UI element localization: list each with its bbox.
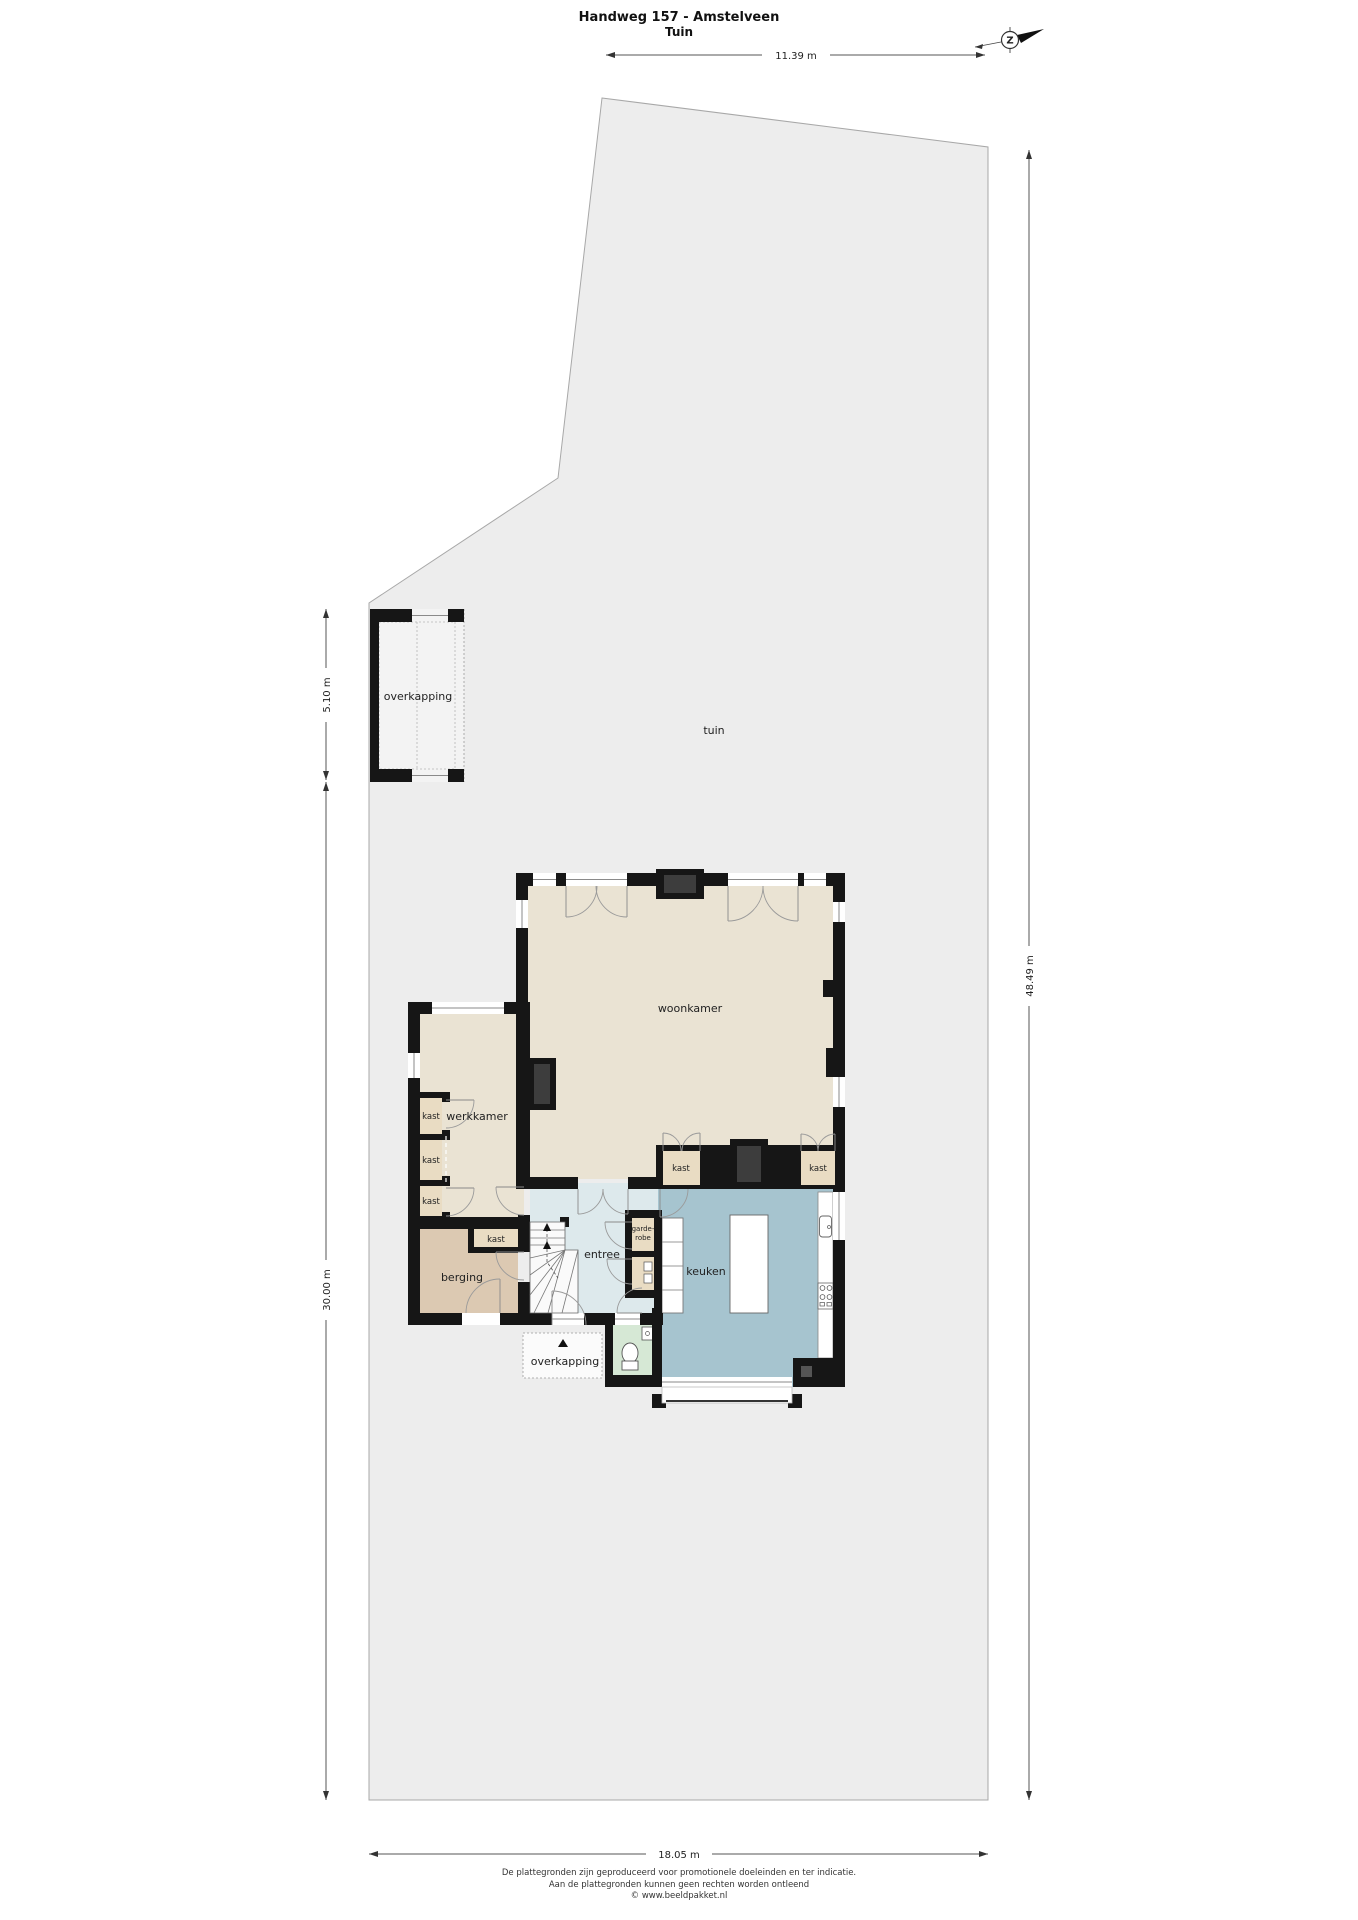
label-garderobe-2: robe [635,1234,651,1242]
label-berging: berging [441,1271,483,1284]
compass-icon: Z [975,27,1044,53]
dim-top-label: 11.39 m [775,51,817,62]
footer-line-2: Aan de plattegronden kunnen geen rechten… [0,1880,1358,1892]
label-kast: kast [422,1197,440,1207]
terrace [662,1387,792,1403]
kitchen-cabinets-icon [662,1218,683,1313]
footer-line-1: De plattegronden zijn geproduceerd voor … [0,1868,1358,1880]
sink-icon [820,1216,832,1237]
dim-garden-left-label: 30.00 m [322,1269,333,1311]
label-overkapping-north: overkapping [384,690,452,703]
compass-letter: Z [1006,36,1013,47]
dim-garden-right-label: 48.49 m [1025,955,1036,997]
label-tuin: tuin [703,724,724,737]
dim-garden-bottom-label: 18.05 m [658,1850,700,1861]
label-keuken: keuken [686,1265,725,1278]
dim-overkapping-label: 5.10 m [322,677,333,712]
meter-cupboard [632,1257,654,1290]
washbasin-icon [642,1327,653,1340]
floorplan-drawing: 11.39 m 5.10 m 30.00 m 48.49 m 18.05 m [0,0,1358,1920]
label-garderobe-1: garde- [632,1225,655,1233]
footer-disclaimer: De plattegronden zijn geproduceerd voor … [0,1868,1358,1903]
label-kast: kast [809,1164,827,1174]
label-kast: kast [672,1164,690,1174]
floorplan-page: Handweg 157 - Amstelveen Tuin [0,0,1358,1920]
label-werkkamer: werkkamer [446,1110,508,1123]
kitchen-island [730,1215,768,1313]
footer-line-3: © www.beeldpakket.nl [0,1891,1358,1903]
label-kast: kast [422,1156,440,1166]
label-entree: entree [584,1248,620,1261]
room-woonkamer [522,879,839,1179]
label-overkapping-south: overkapping [531,1355,599,1368]
label-kast: kast [422,1112,440,1122]
label-woonkamer: woonkamer [658,1002,723,1015]
stove-icon [818,1283,833,1309]
toilet-icon [622,1343,638,1370]
label-kast: kast [487,1235,505,1245]
